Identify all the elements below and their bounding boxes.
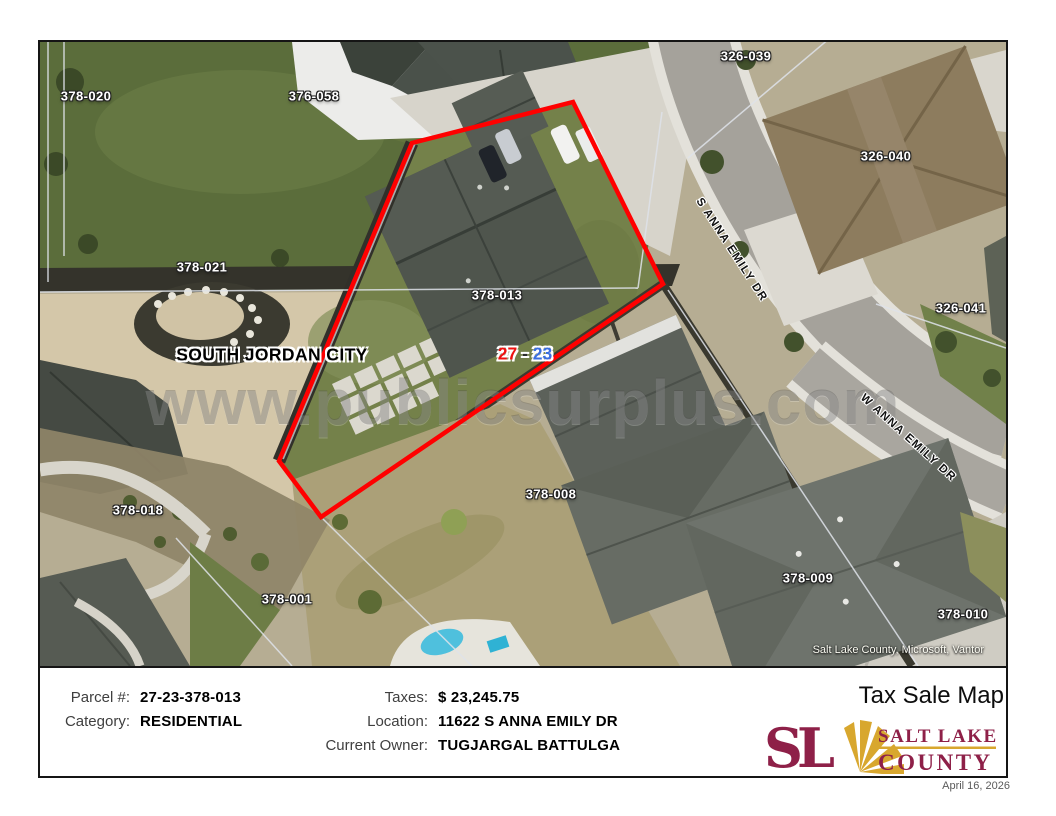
highlighted-parcel-outline: [279, 102, 663, 517]
parcel-label: 326-041: [936, 301, 987, 316]
parcel-label: 376-058: [289, 89, 340, 104]
location-row: Location: 11622 S ANNA EMILY DR: [282, 709, 620, 733]
category-value: RESIDENTIAL: [140, 713, 242, 730]
city-label: SOUTH JORDAN CITY: [176, 345, 368, 366]
taxes-row: Taxes: $ 23,245.75: [282, 685, 620, 709]
page-number: 23: [533, 344, 552, 364]
parcel-label: 378-018: [113, 503, 164, 518]
info-footer: Parcel #: 27-23-378-013 Category: RESIDE…: [40, 668, 1006, 774]
location-value: 11622 S ANNA EMILY DR: [438, 713, 618, 730]
owner-value: TUGJARGAL BATTULGA: [438, 737, 620, 754]
parcel-label: 378-013: [472, 288, 523, 303]
parcel-label: 378-001: [262, 592, 313, 607]
imagery-attribution: Salt Lake County, Microsoft, Vantor: [813, 644, 984, 656]
aerial-photo: www.publicsurplus.com 378-020 376-058 32…: [40, 42, 1006, 668]
parcel-label: 378-020: [61, 89, 112, 104]
taxes-label: Taxes:: [282, 689, 428, 706]
location-label: Location:: [282, 713, 428, 730]
book-number: 27: [498, 344, 517, 364]
category-row: Category: RESIDENTIAL: [42, 709, 242, 733]
parcel-number-label: Parcel #:: [42, 689, 130, 706]
owner-row: Current Owner: TUGJARGAL BATTULGA: [282, 733, 620, 757]
map-date: April 16, 2026: [942, 780, 1010, 792]
map-frame: www.publicsurplus.com 378-020 376-058 32…: [38, 40, 1008, 778]
parcel-number-row: Parcel #: 27-23-378-013: [42, 685, 242, 709]
tax-info-group: Taxes: $ 23,245.75 Location: 11622 S ANN…: [282, 685, 620, 757]
book-page-dash: -: [517, 344, 533, 364]
plat-book-page-label: 27 - 23: [498, 344, 553, 365]
category-label: Category:: [42, 713, 130, 730]
logo-monogram: SL: [766, 720, 834, 774]
parcel-label: 378-021: [177, 260, 228, 275]
logo-line2: COUNTY: [878, 750, 993, 774]
logo-divider: [878, 747, 996, 750]
salt-lake-county-logo: SL SALT LAKE COUNTY: [766, 720, 1006, 774]
parcel-number-value: 27-23-378-013: [140, 689, 241, 706]
logo-line1: SALT LAKE: [878, 726, 998, 747]
taxes-value: $ 23,245.75: [438, 689, 519, 706]
parcel-label: 326-040: [861, 149, 912, 164]
parcel-label: 378-008: [526, 487, 577, 502]
parcel-label: 326-039: [721, 49, 772, 64]
owner-label: Current Owner:: [282, 737, 428, 754]
page-title: Tax Sale Map: [859, 682, 1004, 710]
parcel-label: 378-010: [938, 607, 989, 622]
parcel-info-group: Parcel #: 27-23-378-013 Category: RESIDE…: [42, 685, 242, 733]
parcel-label: 378-009: [783, 571, 834, 586]
